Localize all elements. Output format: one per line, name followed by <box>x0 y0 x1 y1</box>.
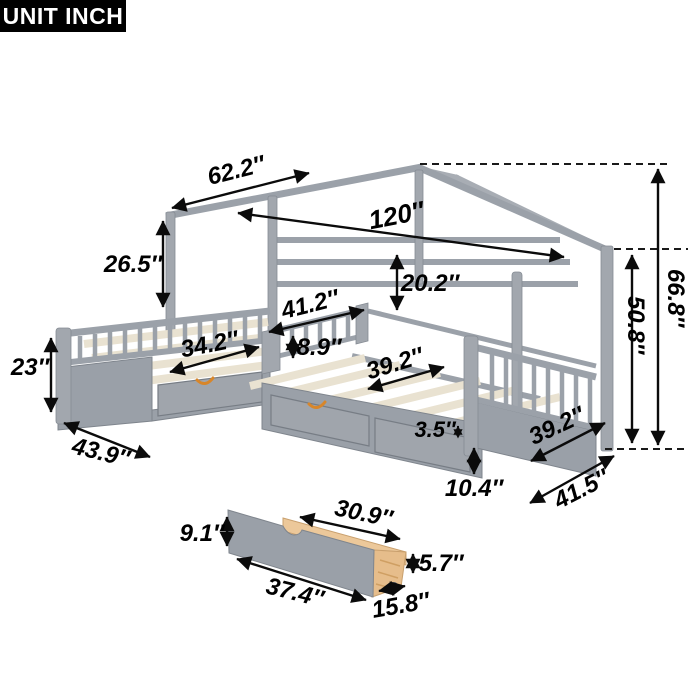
bed-illustration: 62.2″ 120″ 26.5″ 20.2″ 41.2″ 8.9″ <box>0 0 700 700</box>
gable-king-post <box>415 170 423 284</box>
dim-label: 26.5″ <box>103 251 164 278</box>
dim-deck-drawer-gap: 3.5″ <box>414 417 458 442</box>
dim-left-side-height: 23″ <box>10 338 51 412</box>
dim-guardrail-height: 8.9″ <box>293 334 343 361</box>
left-bed-corner-post <box>56 328 71 424</box>
left-bed-side-panel <box>58 357 152 430</box>
left-house-post <box>166 212 175 332</box>
dim-label: 3.5″ <box>414 417 457 442</box>
unit-badge: UNIT INCH <box>0 0 126 32</box>
product-dimension-diagram: 62.2″ 120″ 26.5″ 20.2″ 41.2″ 8.9″ <box>0 0 700 700</box>
left-bed <box>56 311 270 430</box>
dim-drawer-side-height: 5.7″ <box>413 550 465 577</box>
dim-label: 50.8″ <box>622 296 649 356</box>
dim-label: 10.4″ <box>445 475 505 502</box>
dim-head-frame-height: 26.5″ <box>103 221 164 307</box>
dim-label: 23″ <box>10 354 51 381</box>
dim-peak-height: 66.8″ <box>658 169 689 445</box>
dim-label: 8.9″ <box>297 334 343 361</box>
dim-eave-height: 50.8″ <box>622 255 649 443</box>
guardrail-left-post <box>262 328 280 374</box>
dim-left-end-depth: 43.9″ <box>64 423 150 473</box>
foot-corner-post <box>464 336 478 456</box>
dim-drawer-depth: 15.8″ <box>370 586 433 624</box>
dim-drawer-total-height: 9.1″ <box>180 517 227 547</box>
dim-label: 20.2″ <box>400 270 461 297</box>
dim-label: 43.9″ <box>68 432 133 473</box>
right-house-post <box>601 246 613 451</box>
dim-label: 5.7″ <box>419 550 465 577</box>
dim-label: 66.8″ <box>662 269 689 329</box>
dim-label: 9.1″ <box>180 520 226 547</box>
guardrail-right-post <box>356 303 368 344</box>
